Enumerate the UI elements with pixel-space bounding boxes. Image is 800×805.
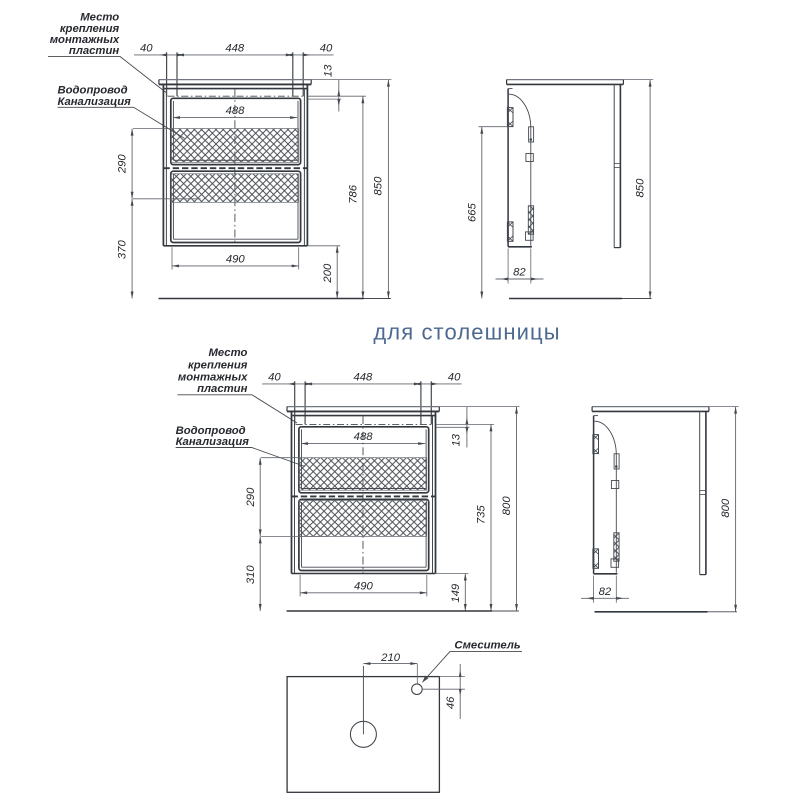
- svg-text:Место: Место: [208, 347, 247, 359]
- svg-text:735: 735: [475, 505, 487, 525]
- svg-text:Место: Место: [80, 12, 119, 24]
- svg-text:крепления: крепления: [188, 359, 248, 371]
- svg-text:488: 488: [226, 105, 246, 117]
- svg-text:13: 13: [323, 64, 335, 77]
- svg-text:Водопровод: Водопровод: [176, 425, 246, 437]
- svg-text:850: 850: [373, 176, 385, 196]
- svg-text:490: 490: [354, 580, 374, 592]
- svg-text:82: 82: [599, 586, 612, 598]
- svg-text:монтажных: монтажных: [178, 371, 248, 383]
- svg-text:488: 488: [354, 431, 374, 443]
- svg-text:40: 40: [268, 372, 281, 384]
- svg-text:786: 786: [347, 184, 359, 204]
- svg-text:Смеситель: Смеситель: [454, 640, 520, 652]
- svg-text:850: 850: [635, 178, 647, 198]
- svg-text:665: 665: [467, 202, 479, 222]
- svg-text:40: 40: [320, 43, 333, 55]
- svg-text:Водопровод: Водопровод: [58, 85, 128, 97]
- svg-text:пластин: пластин: [197, 383, 247, 395]
- svg-text:490: 490: [226, 254, 246, 266]
- svg-text:800: 800: [501, 496, 513, 516]
- svg-text:46: 46: [445, 696, 457, 709]
- svg-text:149: 149: [450, 583, 462, 603]
- svg-text:310: 310: [245, 565, 257, 585]
- svg-text:200: 200: [322, 263, 334, 284]
- svg-text:82: 82: [513, 267, 526, 279]
- svg-text:448: 448: [225, 43, 245, 55]
- svg-text:13: 13: [451, 433, 463, 446]
- svg-text:800: 800: [720, 498, 732, 518]
- svg-text:210: 210: [380, 652, 401, 664]
- svg-text:290: 290: [245, 487, 257, 508]
- svg-text:Канализация: Канализация: [176, 436, 250, 448]
- svg-text:пластин: пластин: [69, 45, 119, 57]
- svg-text:для столешницы: для столешницы: [373, 319, 560, 344]
- svg-text:370: 370: [117, 240, 129, 260]
- svg-text:Канализация: Канализация: [58, 96, 132, 108]
- svg-text:40: 40: [448, 372, 461, 384]
- svg-text:448: 448: [353, 372, 373, 384]
- svg-text:40: 40: [140, 43, 153, 55]
- svg-text:290: 290: [117, 154, 129, 175]
